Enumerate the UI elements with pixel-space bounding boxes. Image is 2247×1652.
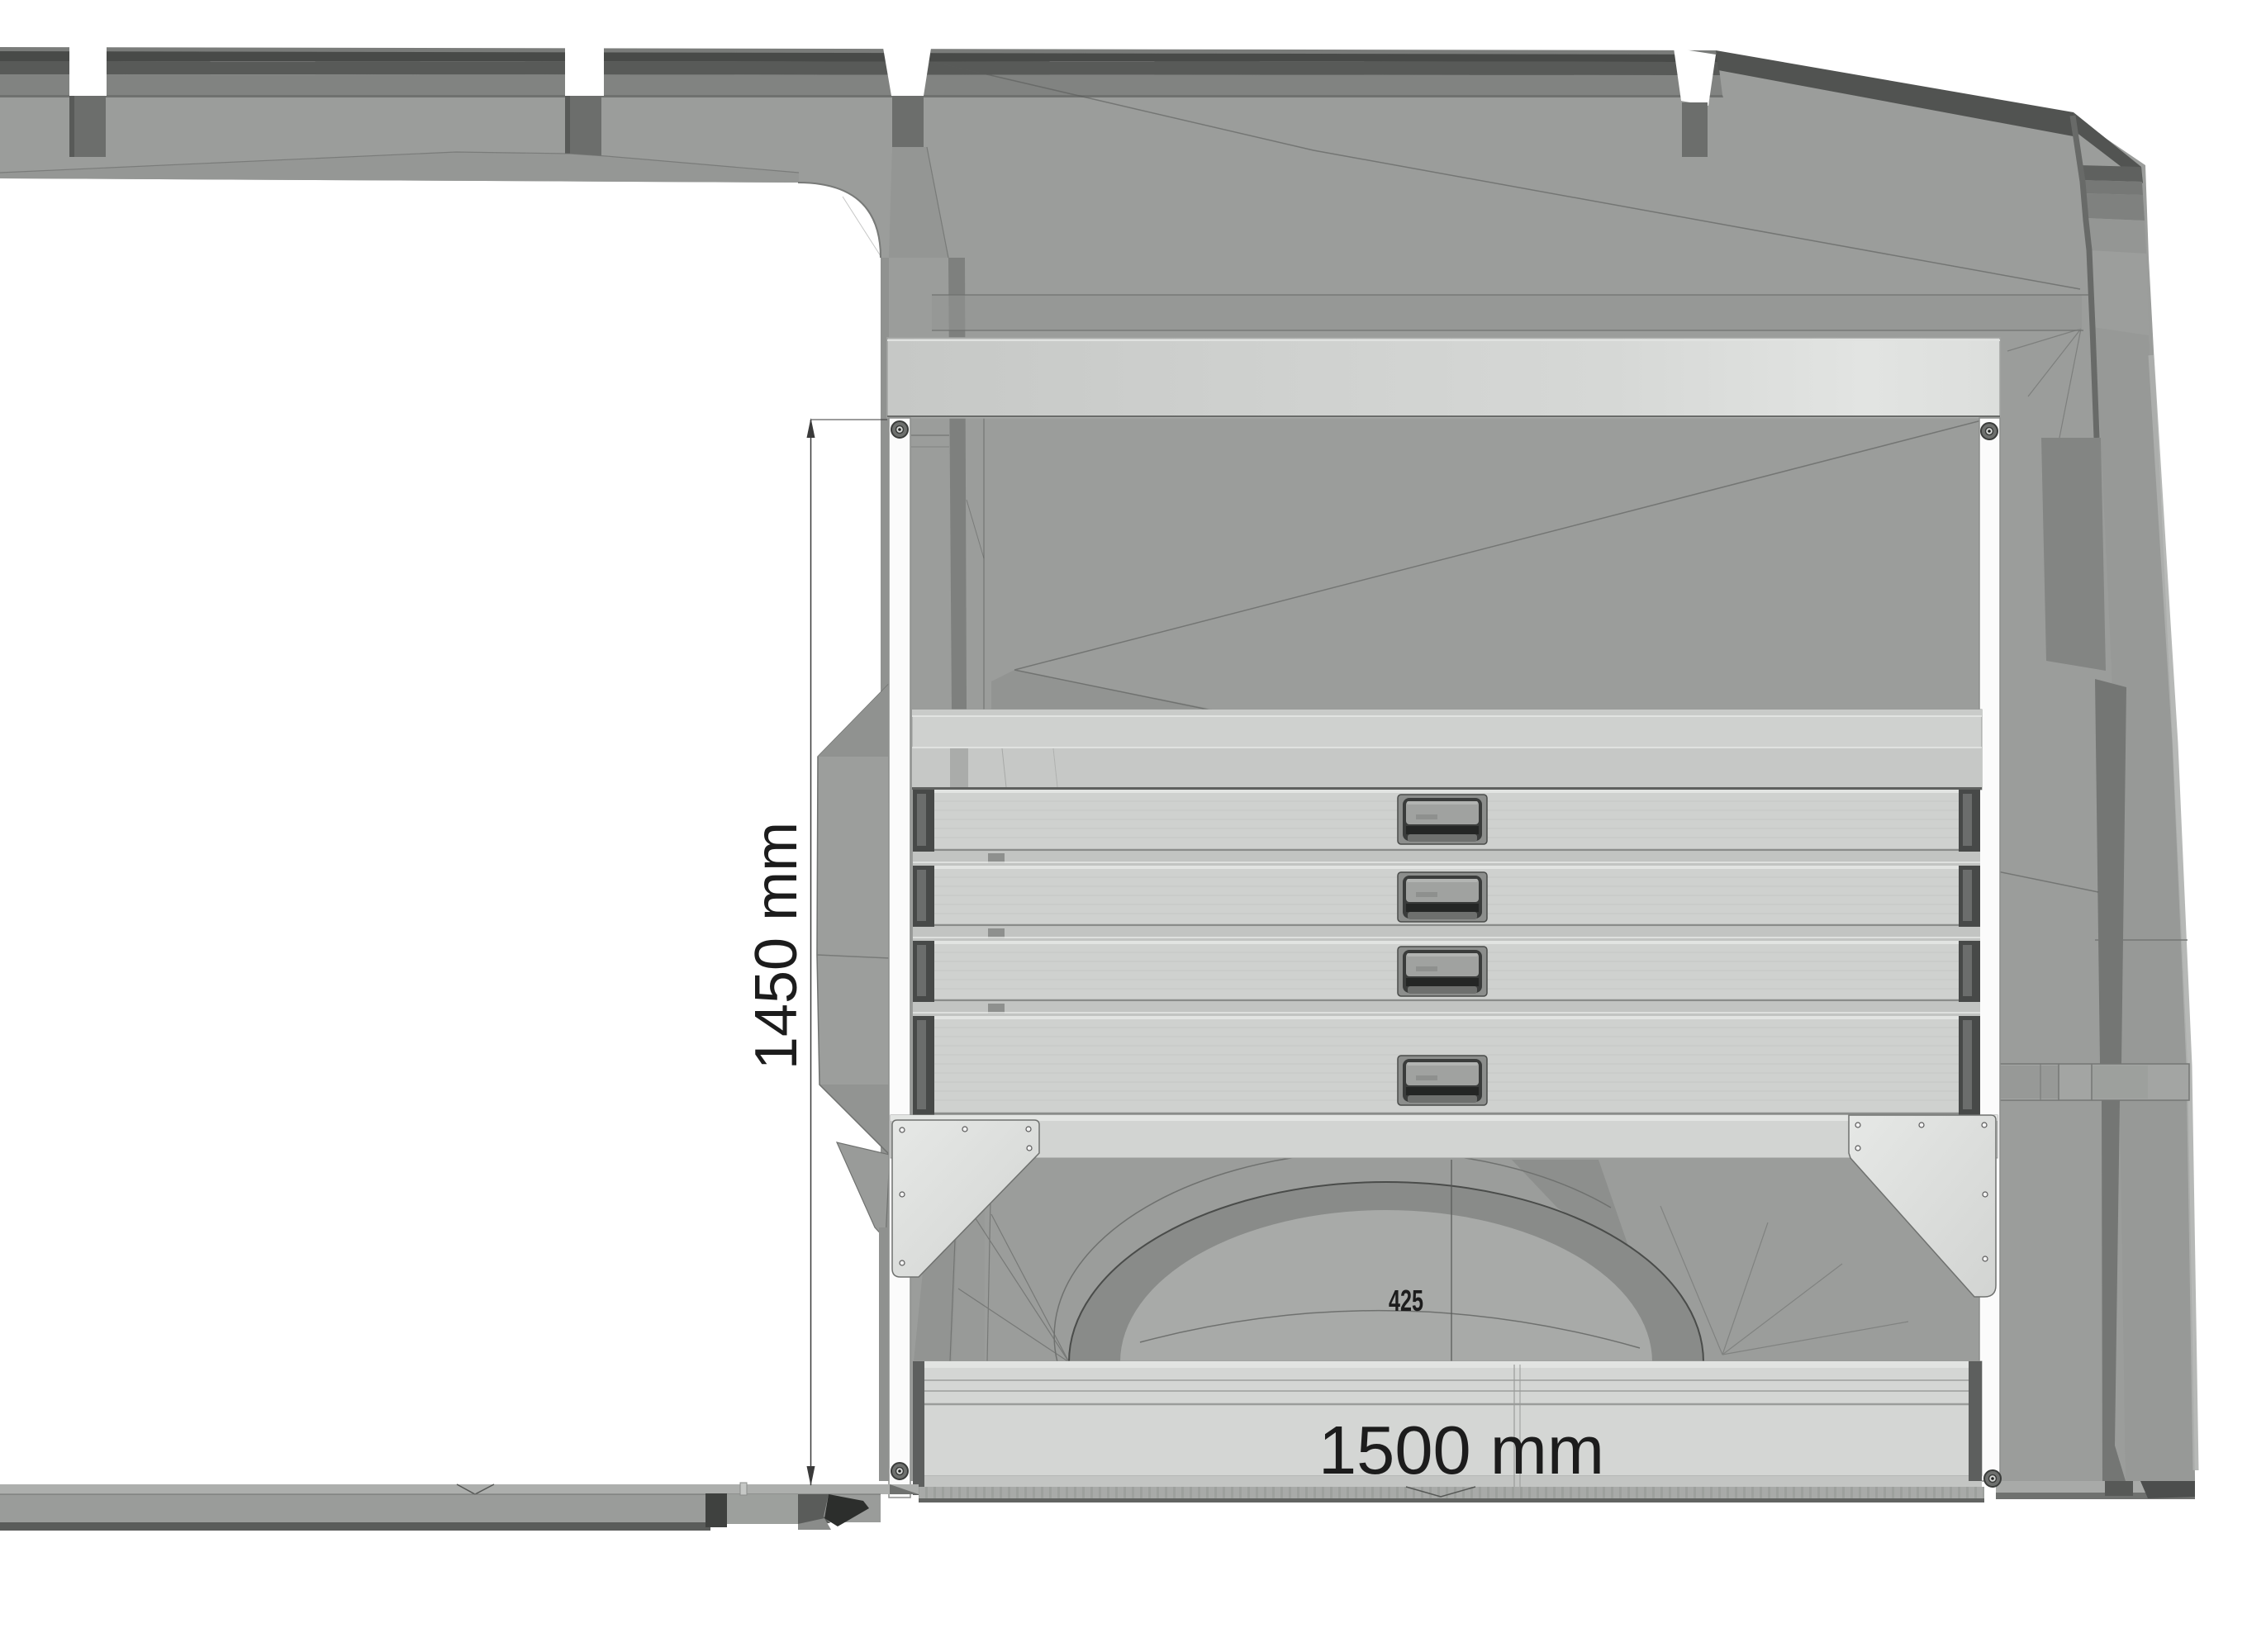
svg-text:1500 mm: 1500 mm bbox=[1318, 1412, 1604, 1488]
svg-text:425: 425 bbox=[1389, 1284, 1423, 1317]
svg-text:1450 mm: 1450 mm bbox=[743, 822, 810, 1070]
